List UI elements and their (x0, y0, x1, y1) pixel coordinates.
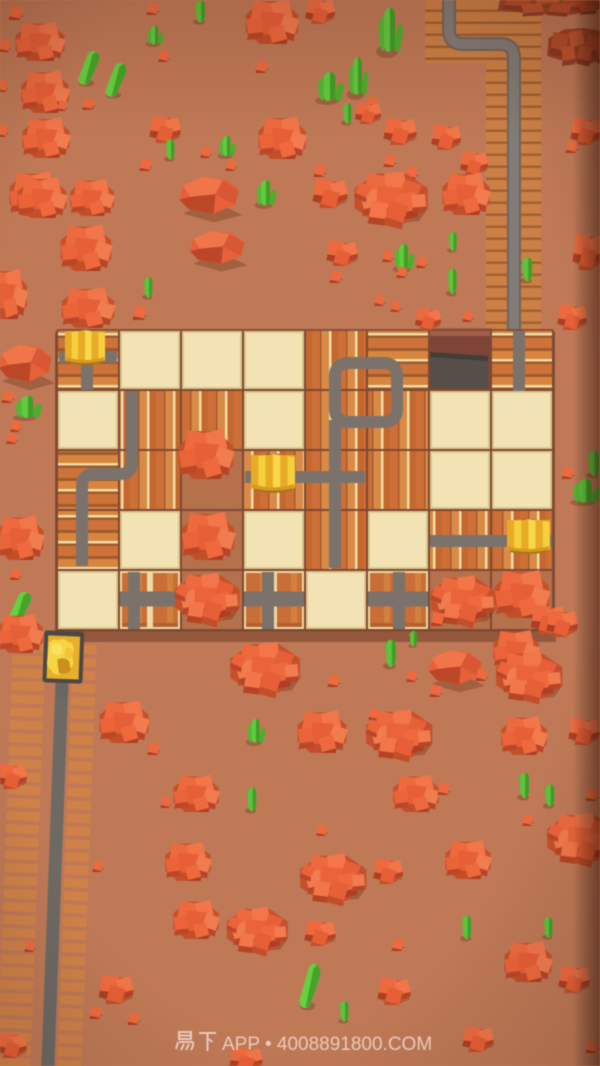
svg-text:APP • 4008891800.COM: APP • 4008891800.COM (222, 1034, 432, 1055)
